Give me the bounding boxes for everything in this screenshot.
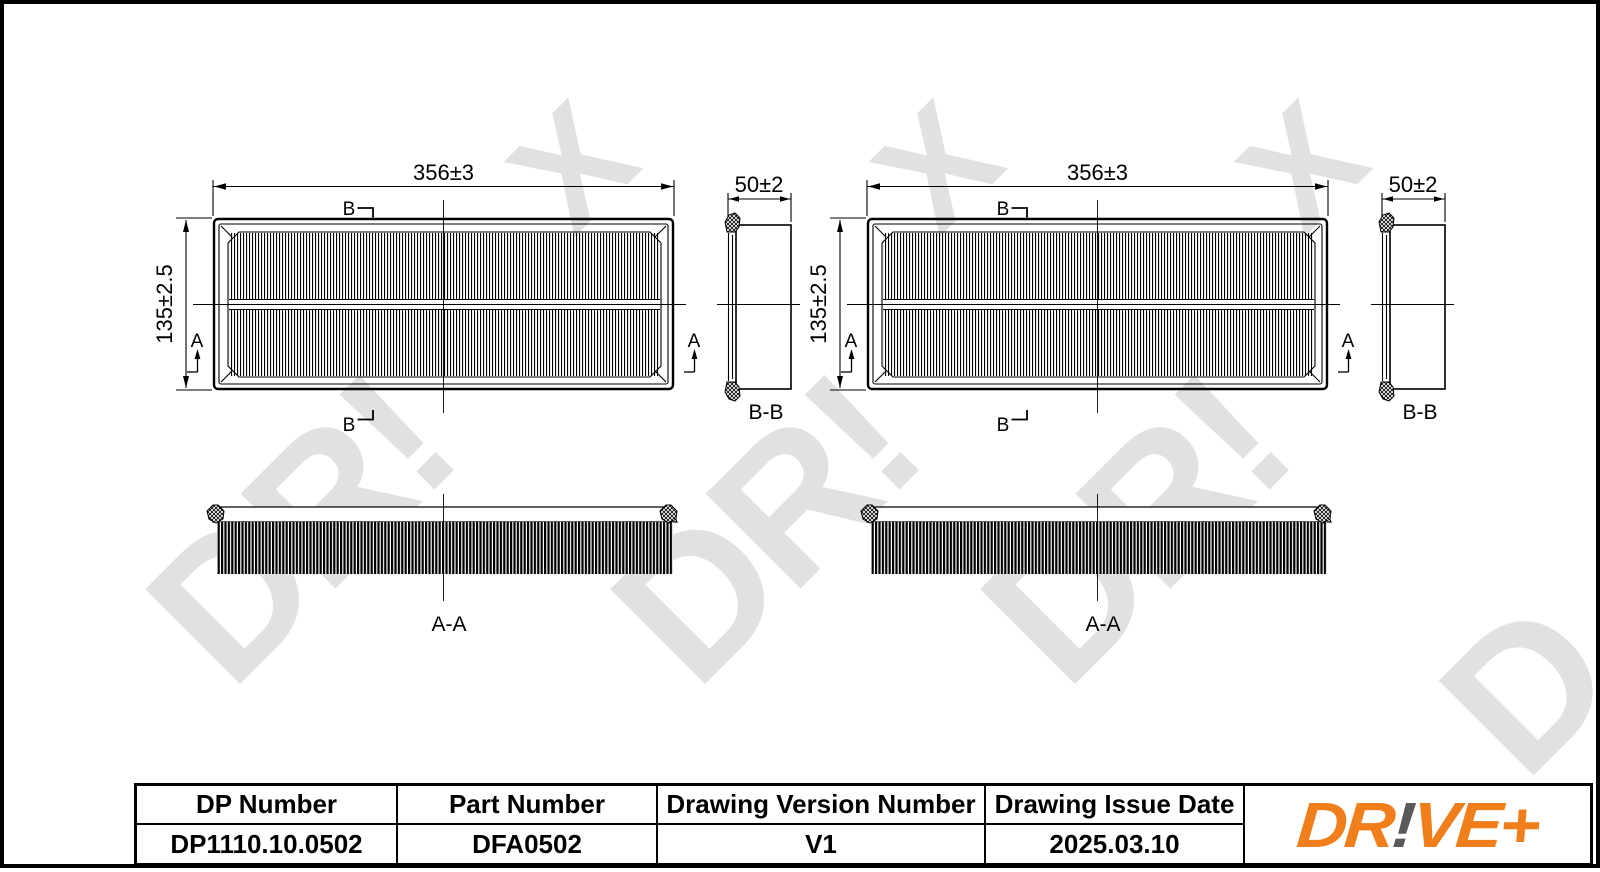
section-label-a-right: A: [688, 331, 701, 352]
section-label-bb: B-B: [748, 401, 783, 424]
section-label-aa: A-A: [431, 613, 466, 636]
bottom-section-view-aa: A-A: [207, 494, 677, 636]
drawing-sheet: X X X DR! DR! DR! D: [0, 0, 1600, 872]
title-block-value: V1: [658, 825, 986, 863]
gasket-seal: [725, 213, 740, 232]
section-label-a-left: A: [191, 331, 204, 352]
brand-logo: DR!VE+: [1245, 786, 1590, 863]
drawing-group-right: [806, 160, 1454, 636]
section-label-b-bottom: B: [343, 415, 356, 436]
drive-plus-logo: DR!VE+: [1295, 793, 1540, 857]
logo-plus: +: [1497, 789, 1540, 861]
dim-height-label: 135±2.5: [152, 264, 177, 343]
title-block: DP Number Part Number Drawing Version Nu…: [134, 783, 1593, 866]
title-block-value: DP1110.10.0502: [137, 825, 398, 863]
title-block-header: Drawing Issue Date: [986, 786, 1245, 825]
drawing-group-left: 356±3 135±2.5 B B A: [152, 160, 800, 636]
title-block-value: DFA0502: [398, 825, 658, 863]
dim-width-label: 356±3: [413, 160, 474, 185]
filter-top-view: [193, 200, 686, 413]
technical-drawing-svg: 356±3 135±2.5 B B A: [0, 0, 1600, 872]
title-block-header: DP Number: [137, 786, 398, 825]
title-block-header: Part Number: [398, 786, 658, 825]
dim-depth-label: 50±2: [735, 172, 784, 197]
gasket-seal: [725, 382, 740, 401]
logo-ve: VE: [1410, 789, 1503, 861]
section-label-b-top: B: [343, 199, 356, 220]
logo-dr: DR: [1295, 789, 1396, 861]
title-block-header: Drawing Version Number: [658, 786, 986, 825]
title-block-value: 2025.03.10: [986, 825, 1245, 863]
height-dimension: 135±2.5: [152, 218, 212, 390]
side-section-view-bb: 50±2 B-B: [717, 172, 800, 424]
